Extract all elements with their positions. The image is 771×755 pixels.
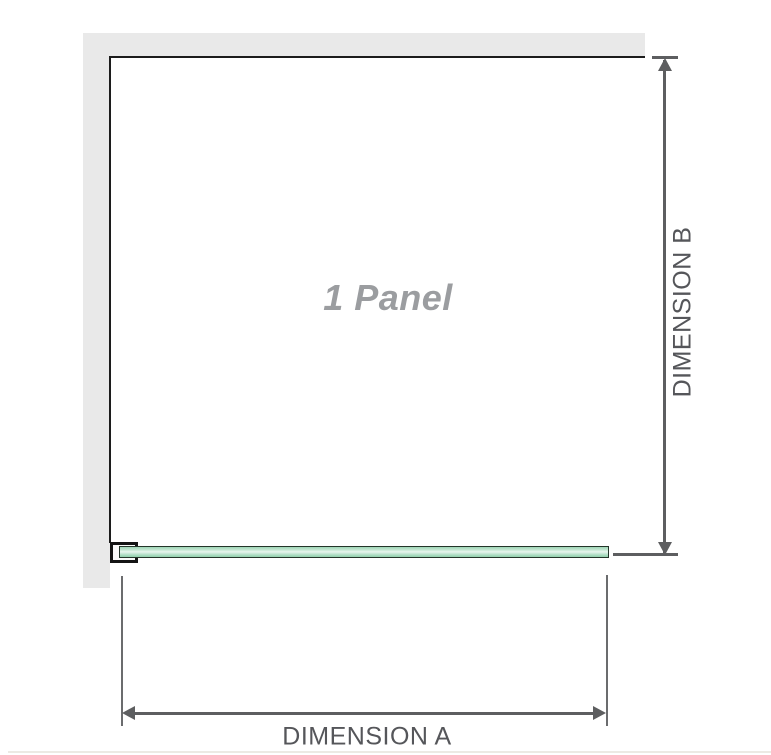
arrow-left-icon <box>122 706 135 720</box>
dimension-b-line <box>663 60 666 554</box>
arrow-right-icon <box>593 706 606 720</box>
wall-strip-left <box>83 33 110 588</box>
glass-panel <box>119 546 609 558</box>
wall-strip-top <box>83 33 645 57</box>
dimension-a-label: DIMENSION A <box>282 723 451 752</box>
arrow-up-icon <box>658 58 672 71</box>
panel-top-edge <box>109 56 645 58</box>
dimension-a-extension-line-left <box>121 576 123 726</box>
panel-dimension-diagram: 1 Panel DIMENSION B DIMENSION A <box>0 0 771 755</box>
dimension-b-label: DIMENSION B <box>669 227 698 398</box>
dimension-a-extension-line-right <box>606 575 608 726</box>
arrow-down-icon <box>658 542 672 555</box>
panel-count-label: 1 Panel <box>323 277 453 319</box>
bottom-edge-line <box>8 751 771 753</box>
dimension-a-line <box>132 712 596 715</box>
panel-left-edge <box>109 56 111 543</box>
